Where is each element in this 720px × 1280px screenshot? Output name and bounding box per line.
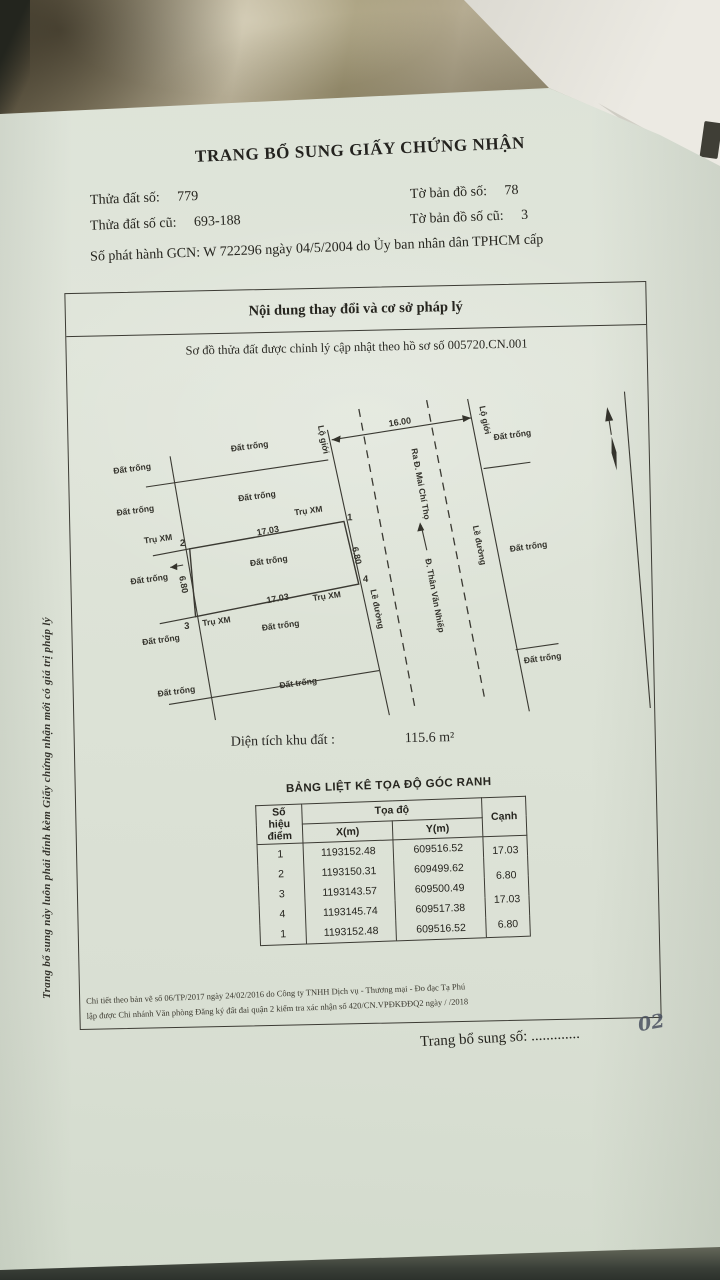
dim-17-bottom: 17.03: [266, 591, 290, 605]
edge-values-cell: 17.03 6.80 17.03 6.80: [483, 835, 530, 937]
point-1: 1: [347, 512, 353, 523]
post-label: Trụ XM: [143, 532, 172, 546]
road-edge-label: Lề đường: [368, 588, 386, 629]
vacant-label: Đất trống: [279, 675, 318, 690]
vacant-label: Đất trống: [116, 503, 155, 518]
area-label: Diện tích khu đất :: [231, 733, 336, 751]
certificate-page: TRANG BỔ SUNG GIẤY CHỨNG NHẬN Thửa đất s…: [0, 0, 720, 1280]
cell-point: 3: [258, 883, 305, 905]
handwritten-page-number: 02: [636, 1010, 666, 1036]
point-2: 2: [180, 538, 186, 549]
dim-17-top: 17.03: [256, 524, 280, 538]
vacant-label: Đất trống: [523, 651, 562, 666]
parcel-old-number-row: Thửa đất số cũ: 693-188: [90, 213, 241, 235]
map-sheet-value: 78: [504, 183, 519, 199]
parcel-old-number-value: 693-188: [194, 213, 241, 230]
vacant-label: Đất trống: [493, 427, 532, 442]
content-box: Nội dung thay đổi và cơ sở pháp lý Sơ đồ…: [64, 281, 661, 1030]
map-sheet-label: Tờ bản đồ số:: [410, 184, 488, 202]
vacant-label: Đất trống: [238, 488, 277, 503]
parcel-old-number-label: Thửa đất số cũ:: [90, 216, 177, 234]
parcel-number-row: Thửa đất số: 779: [90, 189, 199, 209]
edge-value: 17.03: [485, 894, 528, 906]
coordinate-table: Số hiệu điểm Tọa độ Cạnh X(m) Y(m): [255, 796, 531, 946]
content-box-header: Nội dung thay đổi và cơ sở pháp lý: [65, 282, 646, 337]
road-name-label: Đ. Thân Văn Nhiếp: [423, 558, 447, 634]
cell-x: 1193152.48: [306, 921, 397, 944]
map-sheet-old-value: 3: [521, 208, 529, 223]
vacant-label: Đất trống: [509, 539, 548, 554]
vacant-label: Đất trống: [261, 618, 300, 633]
vacant-label: Đất trống: [130, 572, 169, 587]
legal-side-note: Trang bổ sung này luôn phải đính kèm Giấ…: [41, 592, 53, 1024]
cadastral-sketch: Đất trống Đất trống Đất trống Đất trống …: [68, 376, 657, 724]
map-sheet-old-row: Tờ bản đồ số cũ: 3: [410, 208, 529, 229]
content-box-subtitle: Sơ đồ thửa đất được chỉnh lý cập nhật th…: [66, 334, 646, 361]
col-header-point: Số hiệu điểm: [256, 804, 303, 845]
road-to-label: Ra Đ. Mai Chí Thọ: [409, 447, 432, 520]
post-label: Trụ XM: [202, 614, 231, 628]
photo-scene: TRANG BỔ SUNG GIẤY CHỨNG NHẬN Thửa đất s…: [0, 0, 720, 1280]
dim-6-left: 6.80: [177, 575, 190, 594]
edge-value: 6.80: [486, 918, 529, 930]
parcel-number-value: 779: [177, 189, 199, 205]
vacant-label: Đất trống: [113, 461, 152, 476]
vacant-label: Đất trống: [230, 439, 269, 454]
col-header-point-line2: điểm: [261, 830, 298, 843]
surveyor-note: Chi tiết theo bản vẽ số 06/TP/2017 ngày …: [86, 972, 657, 1024]
col-header-point-line1: Số hiệu: [260, 806, 298, 831]
point-4: 4: [363, 574, 369, 585]
dim-16: 16.00: [388, 415, 412, 428]
cell-point: 4: [259, 904, 306, 926]
area-value: 115.6 m²: [405, 730, 455, 747]
cell-point: 2: [258, 863, 305, 885]
post-label: Trụ XM: [312, 589, 341, 603]
vacant-label: Đất trống: [157, 684, 196, 699]
vacant-label: Đất trống: [249, 553, 288, 568]
area-row: Diện tích khu đất : 115.6 m²: [75, 726, 657, 738]
coordinate-table-title: BẢNG LIỆT KÊ TỌA ĐỘ GÓC RANH: [254, 775, 524, 796]
page-title: TRANG BỔ SUNG GIẤY CHỨNG NHẬN: [120, 130, 600, 170]
post-label: Trụ XM: [294, 504, 323, 518]
edge-value: 6.80: [485, 869, 528, 881]
parcel-number-label: Thửa đất số:: [90, 190, 160, 208]
point-3: 3: [184, 621, 190, 632]
road-edge-label: Lề đường: [471, 525, 489, 566]
map-sheet-row: Tờ bản đồ số: 78: [410, 183, 519, 203]
road-boundary-label: Lộ giới: [316, 424, 332, 454]
cell-point: 1: [257, 843, 304, 865]
col-header-edge: Cạnh: [482, 796, 527, 837]
issue-number-row: Số phát hành GCN: W 722296 ngày 04/5/200…: [90, 232, 544, 265]
edge-value: 17.03: [484, 845, 527, 857]
cell-y: 609516.52: [396, 917, 487, 940]
north-arrow: [603, 406, 620, 470]
cell-point: 1: [260, 924, 307, 946]
map-sheet-old-label: Tờ bản đồ số cũ:: [410, 209, 504, 228]
dim-6-right: 6.80: [350, 546, 364, 565]
supplement-page-number: Trang bổ sung số: .............: [420, 1026, 581, 1051]
road-boundary-label: Lộ giới: [477, 405, 493, 435]
vacant-label: Đất trống: [142, 632, 181, 647]
